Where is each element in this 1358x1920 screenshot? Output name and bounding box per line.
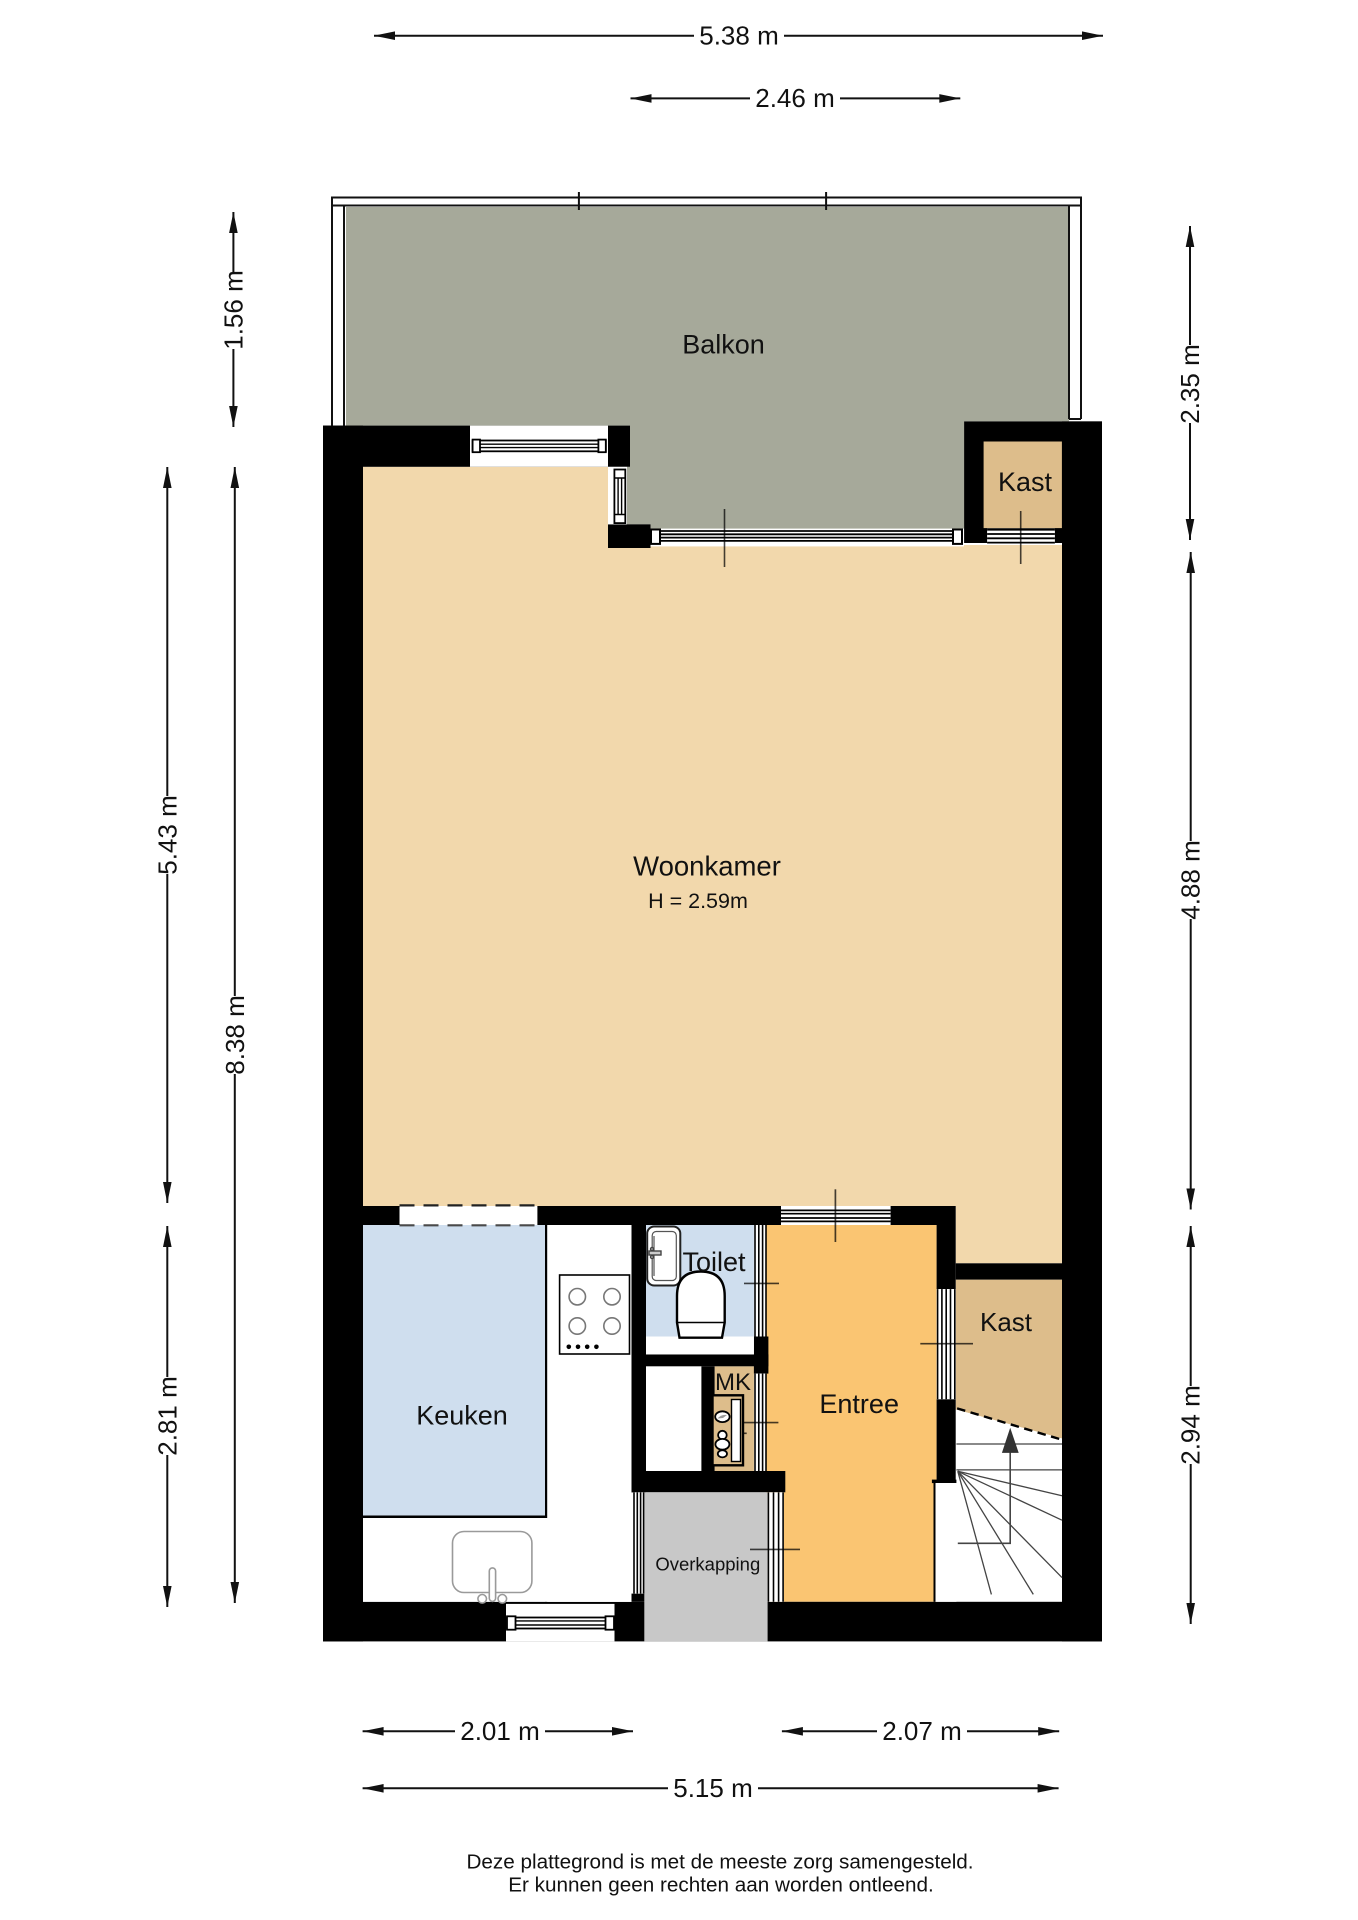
svg-text:1.56 m: 1.56 m: [218, 270, 248, 350]
svg-text:H = 2.59m: H = 2.59m: [648, 889, 748, 913]
svg-text:2.46 m: 2.46 m: [755, 83, 835, 113]
svg-text:5.15 m: 5.15 m: [673, 1773, 753, 1803]
svg-text:Balkon: Balkon: [682, 330, 765, 360]
svg-text:8.38 m: 8.38 m: [220, 995, 250, 1075]
svg-text:2.35 m: 2.35 m: [1175, 344, 1205, 424]
svg-text:Entree: Entree: [819, 1389, 899, 1419]
svg-text:2.07 m: 2.07 m: [882, 1716, 962, 1746]
svg-text:5.43 m: 5.43 m: [152, 795, 182, 875]
svg-text:Woonkamer: Woonkamer: [633, 850, 781, 881]
svg-text:4.88 m: 4.88 m: [1176, 840, 1206, 920]
svg-text:Kast: Kast: [980, 1307, 1033, 1337]
svg-text:Toilet: Toilet: [682, 1247, 746, 1277]
svg-text:Keuken: Keuken: [416, 1400, 508, 1430]
svg-text:Kast: Kast: [998, 467, 1053, 497]
svg-text:2.94 m: 2.94 m: [1176, 1385, 1206, 1465]
svg-text:5.38 m: 5.38 m: [699, 21, 779, 51]
svg-text:Er kunnen geen rechten aan wor: Er kunnen geen rechten aan worden ontlee…: [508, 1874, 934, 1897]
svg-text:MK: MK: [715, 1369, 751, 1396]
svg-text:Deze plattegrond is met de mee: Deze plattegrond is met de meeste zorg s…: [466, 1851, 973, 1874]
svg-text:Overkapping: Overkapping: [655, 1554, 760, 1575]
svg-text:2.81 m: 2.81 m: [152, 1376, 182, 1456]
svg-text:2.01 m: 2.01 m: [460, 1716, 540, 1746]
